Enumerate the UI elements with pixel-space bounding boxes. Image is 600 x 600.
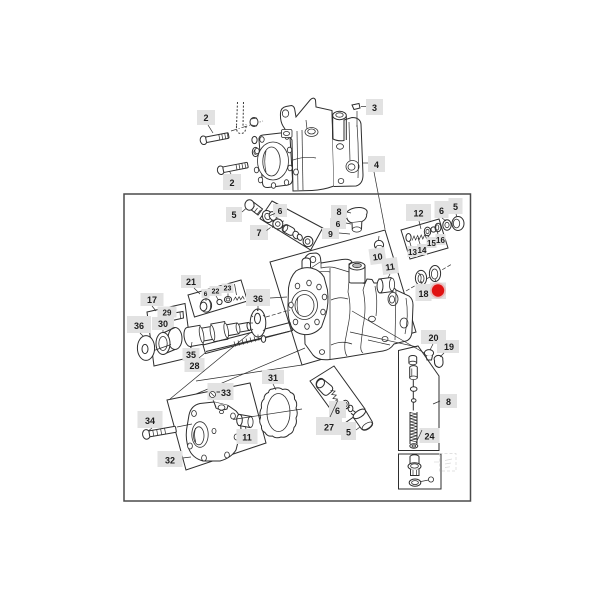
svg-text:29: 29 <box>163 309 172 318</box>
svg-text:9: 9 <box>328 229 333 239</box>
svg-text:8: 8 <box>446 397 451 407</box>
svg-text:13: 13 <box>408 248 417 257</box>
svg-text:6: 6 <box>439 206 444 216</box>
svg-text:32: 32 <box>165 456 175 466</box>
svg-text:36: 36 <box>253 294 263 304</box>
svg-text:4: 4 <box>374 160 379 170</box>
svg-text:6: 6 <box>278 206 283 216</box>
svg-text:27: 27 <box>324 423 334 433</box>
svg-text:6: 6 <box>335 406 340 416</box>
svg-text:5: 5 <box>346 428 351 438</box>
svg-text:6: 6 <box>204 291 208 298</box>
svg-text:21: 21 <box>186 277 196 287</box>
svg-text:5: 5 <box>231 210 236 220</box>
svg-text:24: 24 <box>424 432 434 442</box>
svg-text:30: 30 <box>158 319 168 329</box>
svg-text:7: 7 <box>256 228 261 238</box>
svg-text:34: 34 <box>145 416 155 426</box>
svg-text:23: 23 <box>224 286 232 293</box>
svg-text:6: 6 <box>336 219 341 229</box>
svg-text:11: 11 <box>385 261 396 272</box>
svg-text:2: 2 <box>203 113 208 123</box>
svg-text:11: 11 <box>242 433 252 443</box>
svg-text:36: 36 <box>134 321 144 331</box>
svg-text:18: 18 <box>418 289 428 299</box>
svg-text:14: 14 <box>418 246 427 255</box>
svg-text:31: 31 <box>268 373 278 383</box>
svg-text:2: 2 <box>229 178 234 188</box>
svg-text:3: 3 <box>372 103 377 113</box>
svg-text:16: 16 <box>436 236 445 245</box>
svg-text:19: 19 <box>444 342 454 352</box>
svg-text:33: 33 <box>221 388 231 398</box>
svg-text:22: 22 <box>212 289 220 296</box>
svg-text:5: 5 <box>453 202 458 212</box>
svg-text:28: 28 <box>189 361 199 371</box>
svg-text:8: 8 <box>336 207 341 217</box>
svg-text:12: 12 <box>413 209 423 219</box>
svg-text:17: 17 <box>147 295 157 305</box>
